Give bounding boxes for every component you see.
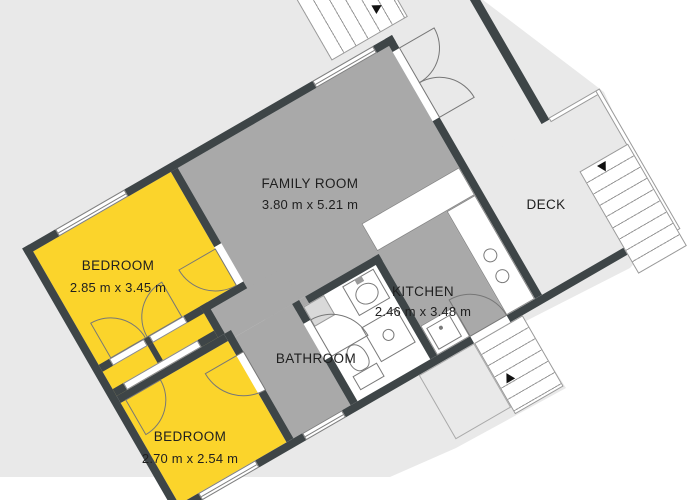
kitchen-dimensions: 2.46 m x 3.48 m (313, 304, 533, 320)
deck-door-arc-lower (420, 63, 475, 118)
bedroom-2-label: BEDROOM (80, 429, 300, 445)
kitchen-label: KITCHEN (313, 284, 533, 300)
bedroom-2-closet-arc (126, 380, 181, 435)
deck-door-arc-upper (400, 28, 455, 83)
bedroom-1-label: BEDROOM (8, 258, 228, 274)
bathroom-label: BATHROOM (206, 351, 426, 367)
family-room-dimensions: 3.80 m x 5.21 m (200, 197, 420, 213)
closet-door-arc-left (91, 303, 146, 358)
family-room-label: FAMILY ROOM (200, 176, 420, 192)
rotated-floor-plan (22, 0, 700, 500)
bedroom-1-dimensions: 2.85 m x 3.45 m (8, 280, 228, 296)
floor-plan-canvas: FAMILY ROOM 3.80 m x 5.21 m BEDROOM 2.85… (0, 0, 700, 500)
deck-label: DECK (436, 197, 656, 213)
bedroom-2-dimensions: 2.70 m x 2.54 m (80, 451, 300, 467)
